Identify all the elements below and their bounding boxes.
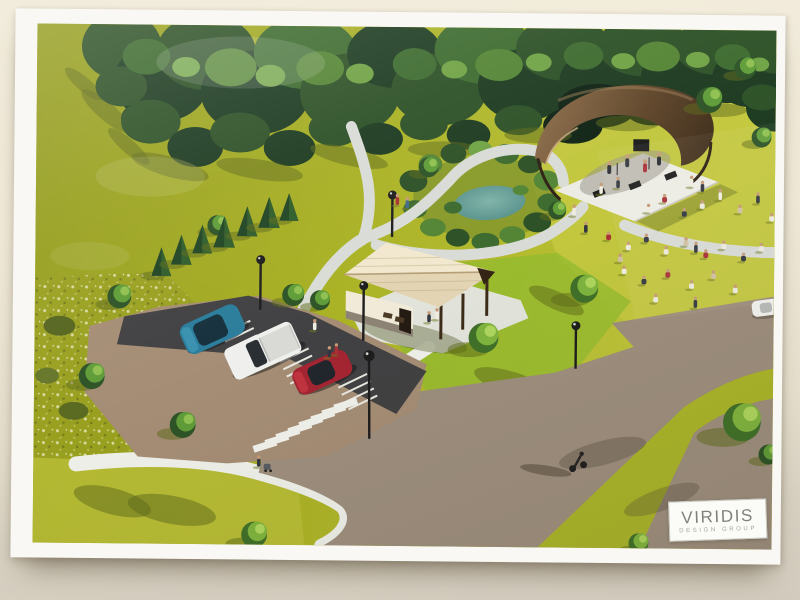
poster: VIRIDIS Design Group <box>10 8 785 564</box>
viridis-logo: VIRIDIS Design Group <box>668 498 767 541</box>
wall: VIRIDIS Design Group <box>0 0 800 600</box>
logo-title: VIRIDIS <box>681 506 754 525</box>
park-rendering: VIRIDIS Design Group <box>33 24 777 550</box>
logo-subtitle: Design Group <box>679 525 757 534</box>
park-scene-svg <box>33 24 777 550</box>
